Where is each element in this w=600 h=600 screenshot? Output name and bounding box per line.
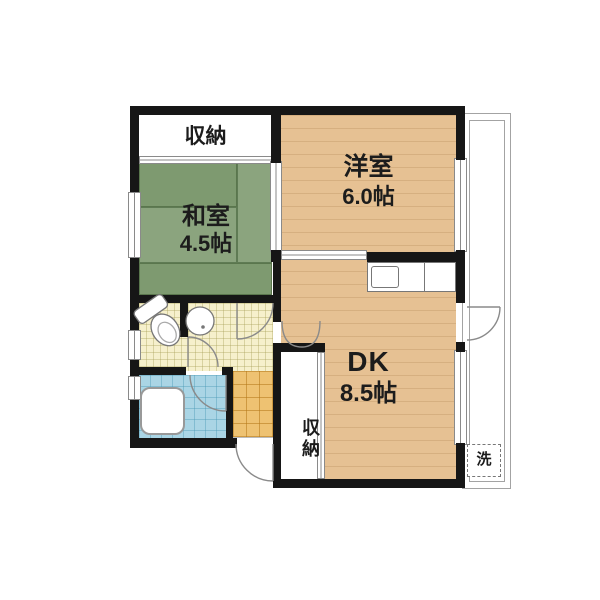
closet-top-label: 収納 bbox=[139, 126, 272, 147]
wall bbox=[456, 342, 465, 352]
balcony-inner bbox=[469, 120, 505, 482]
wall bbox=[271, 106, 281, 163]
wall bbox=[130, 295, 281, 303]
window bbox=[128, 330, 141, 360]
washroom bbox=[139, 303, 273, 371]
kitchen-sink bbox=[371, 266, 399, 288]
wall bbox=[456, 250, 465, 303]
wall bbox=[130, 438, 237, 448]
dk-label: DK bbox=[281, 348, 456, 376]
wall bbox=[456, 106, 465, 160]
entrance-genkan bbox=[233, 371, 273, 437]
closet-sliding-door bbox=[139, 156, 272, 164]
floor-plan: 収納 和室 4.5帖 洋室 6.0帖 DK 8.5帖 収納 洗 bbox=[0, 0, 600, 600]
window bbox=[128, 376, 141, 400]
japanese-room-label: 和室 bbox=[139, 205, 273, 229]
wall bbox=[130, 106, 139, 192]
wall bbox=[226, 375, 233, 443]
wall bbox=[130, 367, 186, 375]
entrance-door-arc bbox=[236, 444, 273, 481]
kitchen-counter-divider bbox=[424, 263, 425, 291]
wall bbox=[273, 252, 281, 322]
wall bbox=[180, 303, 188, 337]
wall bbox=[367, 252, 456, 262]
japanese-room-size: 4.5帖 bbox=[139, 233, 273, 255]
wall bbox=[222, 367, 233, 375]
room-partition-opening bbox=[281, 250, 367, 260]
wall bbox=[130, 258, 139, 330]
wall bbox=[273, 352, 281, 488]
wall bbox=[130, 106, 465, 115]
tatami-mat bbox=[139, 163, 237, 207]
western-room-label: 洋室 bbox=[281, 155, 456, 180]
closet-bottom-label: 収納 bbox=[281, 393, 319, 485]
western-room-size: 6.0帖 bbox=[281, 186, 456, 208]
wall bbox=[456, 443, 465, 488]
genkan-step bbox=[233, 437, 273, 443]
bathroom bbox=[139, 375, 226, 438]
tatami-mat bbox=[139, 263, 272, 295]
laundry-label: 洗 bbox=[467, 452, 501, 467]
